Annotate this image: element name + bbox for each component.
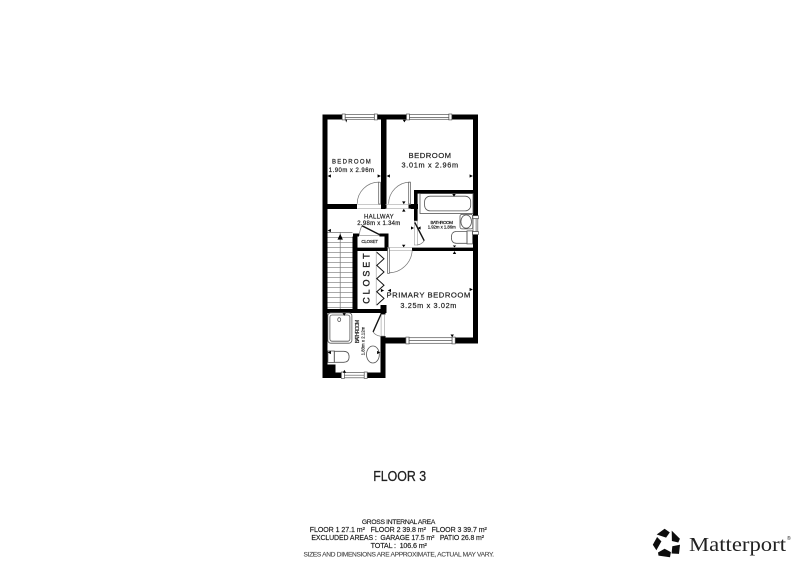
svg-text:GROSS INTERNAL AREA: GROSS INTERNAL AREA [362, 519, 436, 526]
svg-text:Matterport: Matterport [689, 534, 786, 556]
svg-text:FLOOR 3: FLOOR 3 [373, 469, 426, 485]
svg-text:1.92m x 1.86m: 1.92m x 1.86m [428, 225, 456, 230]
svg-text:TOTAL : 106.6 m²: TOTAL : 106.6 m² [371, 541, 428, 550]
svg-text:BEDROOM: BEDROOM [409, 151, 452, 160]
svg-text:1.83m x 2.12m: 1.83m x 2.12m [361, 326, 366, 355]
svg-text:FLOOR 1 27.1 m² FLOOR 2 39.8: FLOOR 1 27.1 m² FLOOR 2 39.8 m² FLOOR 3 … [310, 527, 488, 534]
svg-text:CLOSET: CLOSET [361, 253, 371, 304]
svg-text:®: ® [787, 535, 791, 542]
svg-text:1.90m x 2.96m: 1.90m x 2.96m [329, 168, 374, 174]
svg-text:PRIMARY BEDROOM: PRIMARY BEDROOM [387, 291, 471, 300]
svg-text:BEDROOM: BEDROOM [332, 160, 371, 166]
svg-text:SIZES AND DIMENSIONS ARE APPRO: SIZES AND DIMENSIONS ARE APPROXIMATE, AC… [303, 551, 494, 558]
svg-text:CLOSET: CLOSET [361, 239, 378, 244]
svg-text:HALLWAY: HALLWAY [364, 214, 394, 220]
svg-text:3.01m x 2.96m: 3.01m x 2.96m [402, 161, 459, 170]
svg-text:3.25m x 3.02m: 3.25m x 3.02m [400, 301, 456, 310]
svg-text:2.98m x 1.34m: 2.98m x 1.34m [357, 221, 400, 227]
